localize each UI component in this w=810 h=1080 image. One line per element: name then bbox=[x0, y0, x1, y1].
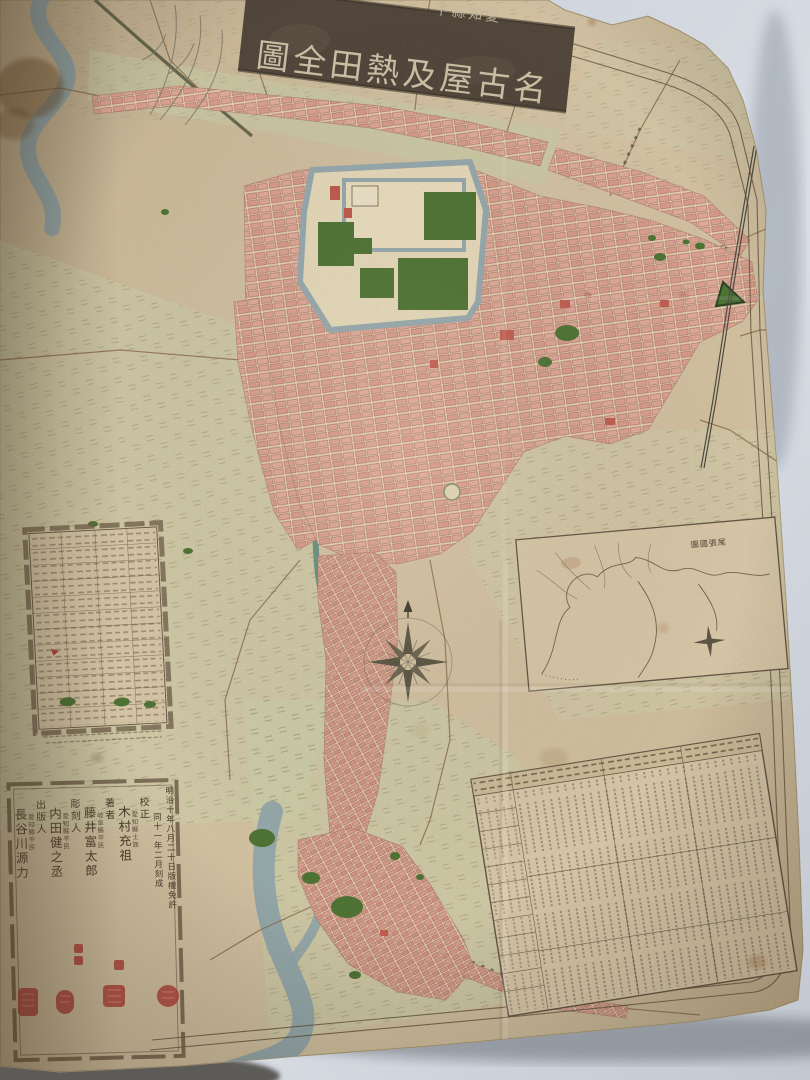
colophon-affiliation: 愛知縣平民 bbox=[26, 814, 34, 852]
colophon-entry-proofreader: 校正 愛知縣士族 木村充祖 bbox=[116, 787, 153, 1044]
colophon-role: 校正 bbox=[136, 797, 147, 821]
colophon-entry-engraver: 彫刻人 愛知縣平民 内田健之丞 bbox=[47, 788, 84, 1045]
map-photograph: 尾張國圖 bbox=[0, 0, 810, 1080]
colophon-role: 彫刻人 bbox=[67, 798, 78, 834]
colophon-affiliation: 岐阜縣平民 bbox=[95, 812, 103, 850]
colophon-entry-author: 著者 岐阜縣平民 藤井富太郎 bbox=[82, 788, 119, 1045]
colophon-affiliation: 愛知縣士族 bbox=[130, 811, 138, 849]
colophon-entry-publisher: 出版人 愛知縣平民 長谷川源力 bbox=[13, 789, 50, 1046]
colophon-role: 著者 bbox=[102, 798, 113, 822]
colophon-affiliation: 愛知縣平民 bbox=[61, 813, 69, 851]
colophon: 明治十年八月二十日版權免許 同十一年二月刻成 校正 愛知縣士族 木村充祖 著者 … bbox=[13, 786, 180, 1046]
